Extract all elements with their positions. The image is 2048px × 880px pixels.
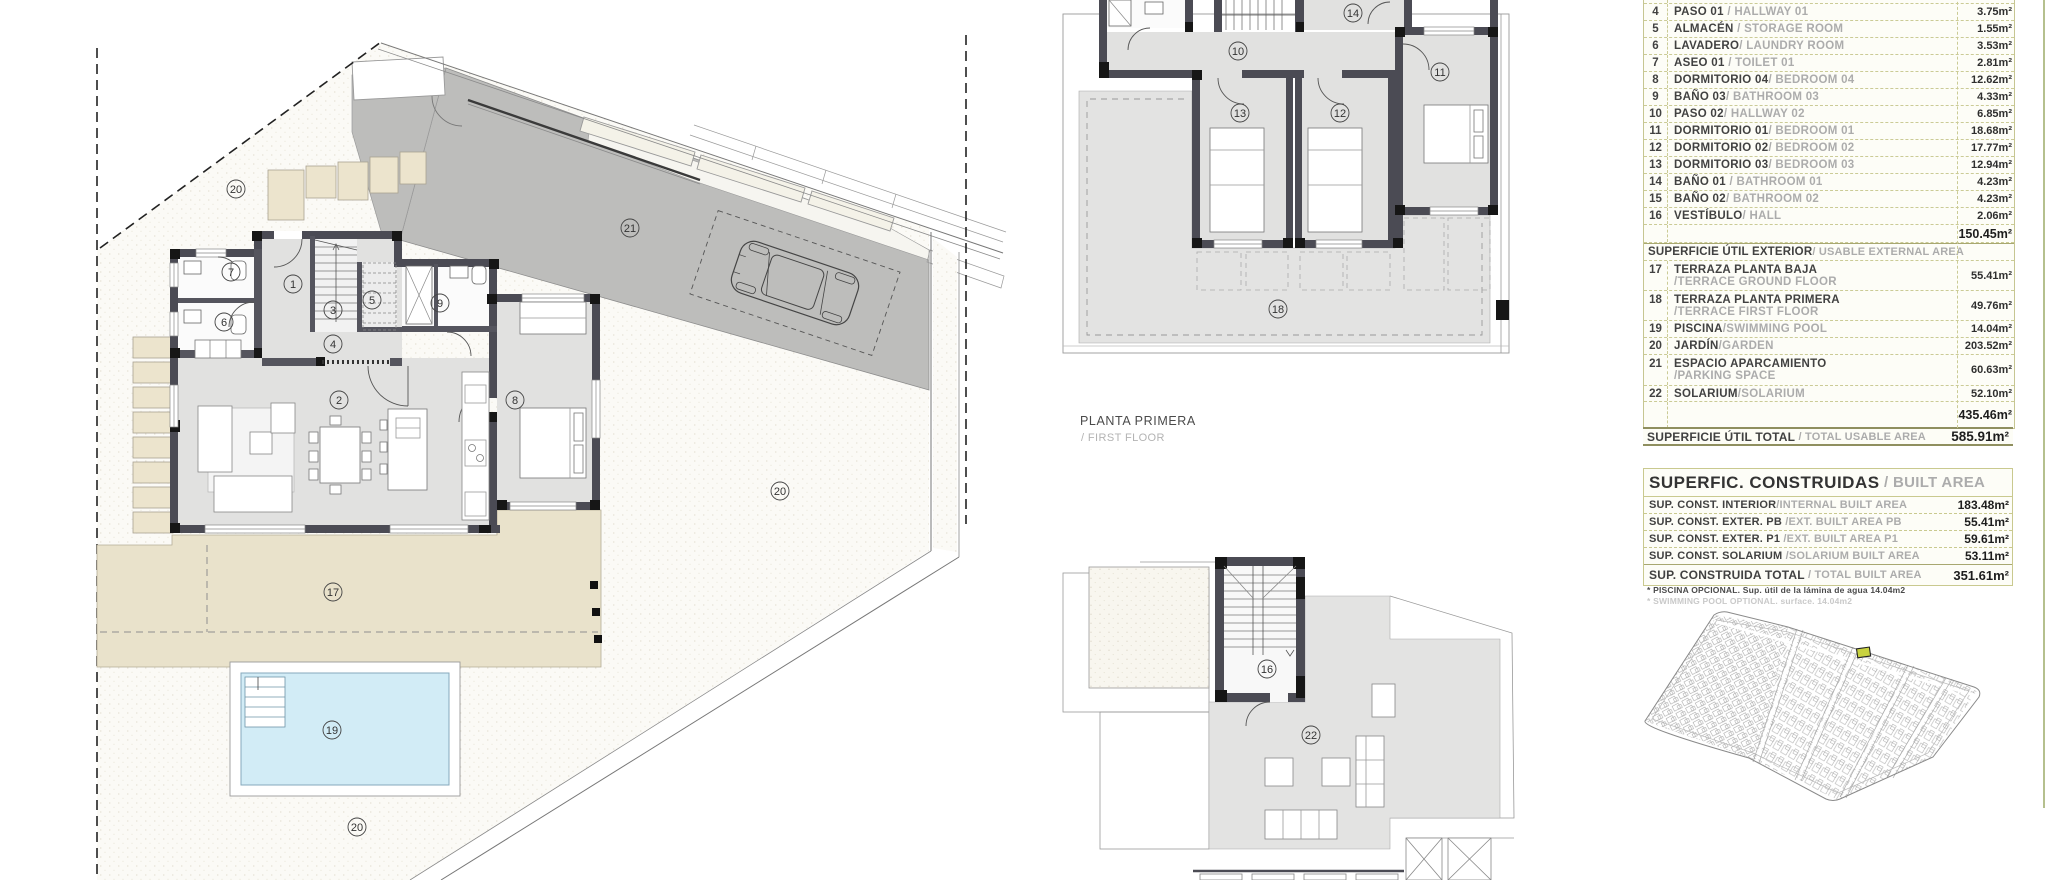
svg-text:8: 8 bbox=[512, 395, 518, 407]
svg-text:20: 20 bbox=[230, 184, 242, 196]
svg-text:10: 10 bbox=[1232, 46, 1244, 58]
svg-text:12: 12 bbox=[1334, 108, 1346, 120]
svg-text:/ FIRST FLOOR: / FIRST FLOOR bbox=[1081, 432, 1165, 444]
svg-text:2: 2 bbox=[336, 395, 342, 407]
svg-text:18: 18 bbox=[1272, 304, 1284, 316]
svg-text:22: 22 bbox=[1305, 730, 1317, 742]
svg-text:PLANTA PRIMERA: PLANTA PRIMERA bbox=[1080, 414, 1196, 428]
svg-text:11: 11 bbox=[1434, 67, 1445, 79]
svg-text:6: 6 bbox=[221, 317, 227, 329]
svg-text:17: 17 bbox=[327, 587, 339, 599]
svg-text:3: 3 bbox=[330, 305, 336, 317]
svg-text:14: 14 bbox=[1347, 8, 1359, 20]
svg-text:5: 5 bbox=[369, 295, 375, 307]
svg-text:20: 20 bbox=[774, 486, 786, 498]
svg-text:19: 19 bbox=[326, 725, 338, 737]
svg-text:4: 4 bbox=[330, 339, 336, 351]
svg-text:20: 20 bbox=[351, 822, 363, 834]
svg-text:1: 1 bbox=[290, 279, 296, 291]
svg-text:13: 13 bbox=[1234, 108, 1246, 120]
svg-text:9: 9 bbox=[437, 298, 443, 310]
svg-text:21: 21 bbox=[624, 223, 636, 235]
svg-text:16: 16 bbox=[1261, 664, 1273, 676]
svg-text:7: 7 bbox=[228, 267, 234, 279]
